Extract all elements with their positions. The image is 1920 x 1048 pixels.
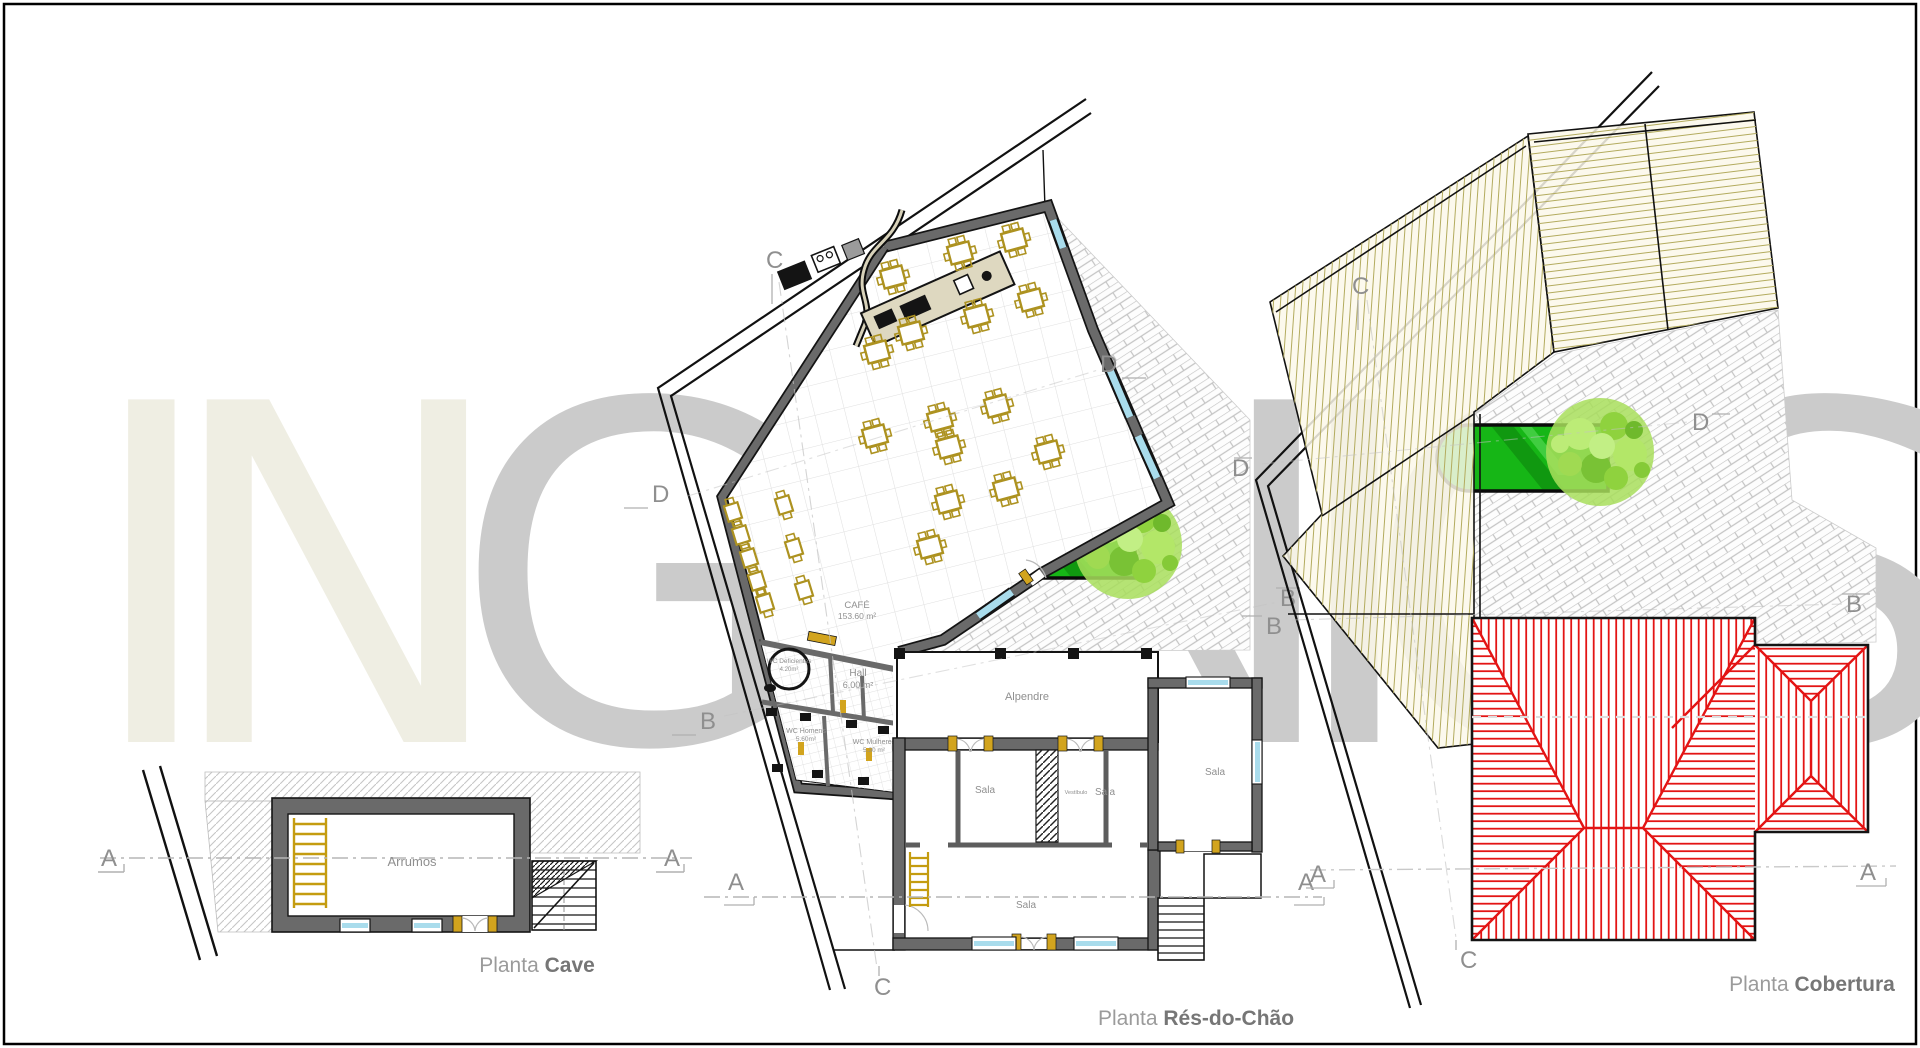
room-label-sala-4: Sala xyxy=(1016,900,1036,911)
room-label-wc-def: WC Deficientes xyxy=(767,658,813,665)
section-marker-c-bottom: C xyxy=(1460,947,1477,974)
section-marker-b-left: B xyxy=(1266,613,1282,640)
plan-label-name: Cave xyxy=(545,954,595,977)
section-marker-c-top: C xyxy=(1352,273,1369,300)
house-terrace xyxy=(1204,854,1261,898)
cave-external-stair xyxy=(532,861,596,930)
section-marker-a-left: A xyxy=(1310,861,1326,888)
section-marker-a-right: A xyxy=(1860,859,1876,886)
plan-label-prefix: Planta xyxy=(1729,973,1794,996)
room-label-sala-2: Sala xyxy=(1095,787,1115,798)
watermark-faint: IN xyxy=(82,306,469,853)
section-marker-c-top: C xyxy=(766,247,783,274)
room-label-arrumos: Arrumos xyxy=(387,854,437,869)
vestibule-stair-hatch xyxy=(1036,750,1058,842)
section-marker-b-left: B xyxy=(700,708,716,735)
plan-label-name: Rés-do-Chão xyxy=(1163,1007,1294,1030)
section-marker-a-left: A xyxy=(728,869,744,896)
room-area-cafe: 153.60 m² xyxy=(838,611,876,621)
floorplan-sheet: INGENIOS xyxy=(0,0,1920,1048)
room-label-wc-homens: WC Homens xyxy=(786,728,826,735)
plan-label-roof: Planta Cobertura xyxy=(1729,973,1895,996)
room-label-sala-1: Sala xyxy=(975,785,995,796)
room-label-sala-3: Sala xyxy=(1205,767,1225,778)
section-marker-d-right: D xyxy=(1100,351,1117,378)
floorplan-drawing: INGENIOS xyxy=(0,0,1920,1048)
cave-double-door xyxy=(453,916,497,932)
plan-label-cave: Planta Cave xyxy=(479,954,595,977)
room-label-cafe: CAFÉ xyxy=(844,600,869,611)
plan-label-ground: Planta Rés-do-Chão xyxy=(1098,1007,1294,1030)
room-label-hall: Hall xyxy=(849,668,866,679)
section-marker-d-left: D xyxy=(652,481,669,508)
section-marker-a-right: A xyxy=(664,845,680,872)
room-area-wc-def: 4.20m² xyxy=(780,667,799,673)
section-marker-c-bottom: C xyxy=(874,974,891,1001)
tree xyxy=(1546,398,1654,506)
plan-label-prefix: Planta xyxy=(479,954,544,977)
plan-label-name: Cobertura xyxy=(1795,973,1896,996)
room-area-wc-mulheres: 5.30 m² xyxy=(863,747,886,754)
section-marker-d-right: D xyxy=(1692,409,1709,436)
room-label-vestibulo: Vestíbulo xyxy=(1065,790,1088,796)
room-label-wc-mulheres: WC Mulheres xyxy=(853,739,896,746)
section-marker-b-right: B xyxy=(1846,591,1862,618)
house-external-stair xyxy=(1158,898,1204,960)
section-marker-a-left: A xyxy=(101,845,117,872)
section-marker-d-left: D xyxy=(1232,455,1249,482)
room-area-wc-homens: 5.60m² xyxy=(796,736,817,743)
plan-label-prefix: Planta xyxy=(1098,1007,1163,1030)
room-label-alpendre: Alpendre xyxy=(1005,691,1049,703)
